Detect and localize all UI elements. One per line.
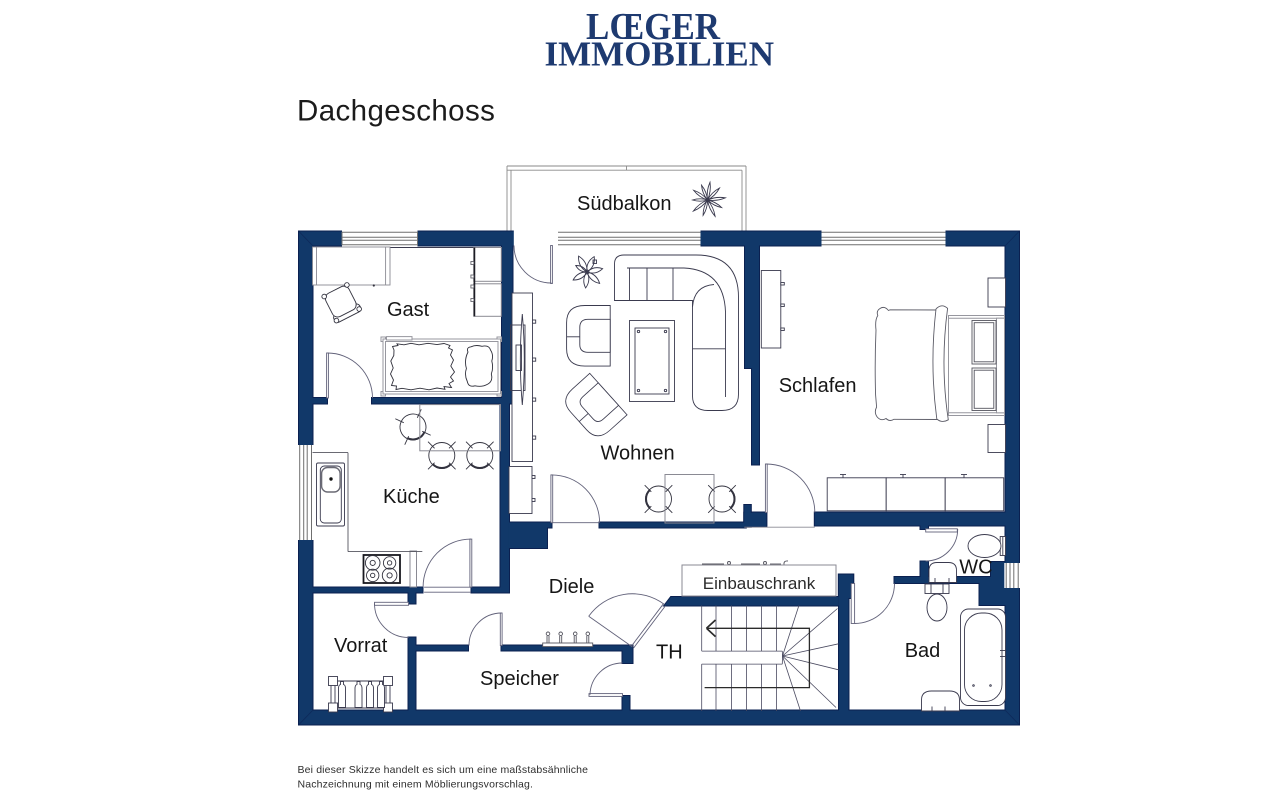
- svg-text:Wohnen: Wohnen: [601, 443, 675, 465]
- svg-text:Gast: Gast: [387, 299, 430, 321]
- svg-text:Vorrat: Vorrat: [334, 635, 388, 657]
- svg-text:Schlafen: Schlafen: [779, 375, 857, 397]
- svg-text:Speicher: Speicher: [480, 668, 559, 690]
- svg-text:Nachzeichnung mit einem Möblie: Nachzeichnung mit einem Möblierungsvorsc…: [298, 779, 534, 791]
- svg-text:IMMOBILIEN: IMMOBILIEN: [545, 36, 775, 74]
- svg-text:Bad: Bad: [905, 640, 941, 662]
- svg-text:Dachgeschoss: Dachgeschoss: [297, 95, 495, 128]
- svg-text:WC: WC: [959, 557, 992, 579]
- svg-text:TH: TH: [656, 642, 683, 664]
- svg-text:Einbauschrank: Einbauschrank: [703, 574, 816, 593]
- svg-text:Küche: Küche: [383, 486, 440, 508]
- svg-text:Bei dieser Skizze handelt es s: Bei dieser Skizze handelt es sich um ein…: [298, 764, 589, 776]
- svg-text:Südbalkon: Südbalkon: [577, 193, 672, 215]
- svg-text:Diele: Diele: [549, 576, 595, 598]
